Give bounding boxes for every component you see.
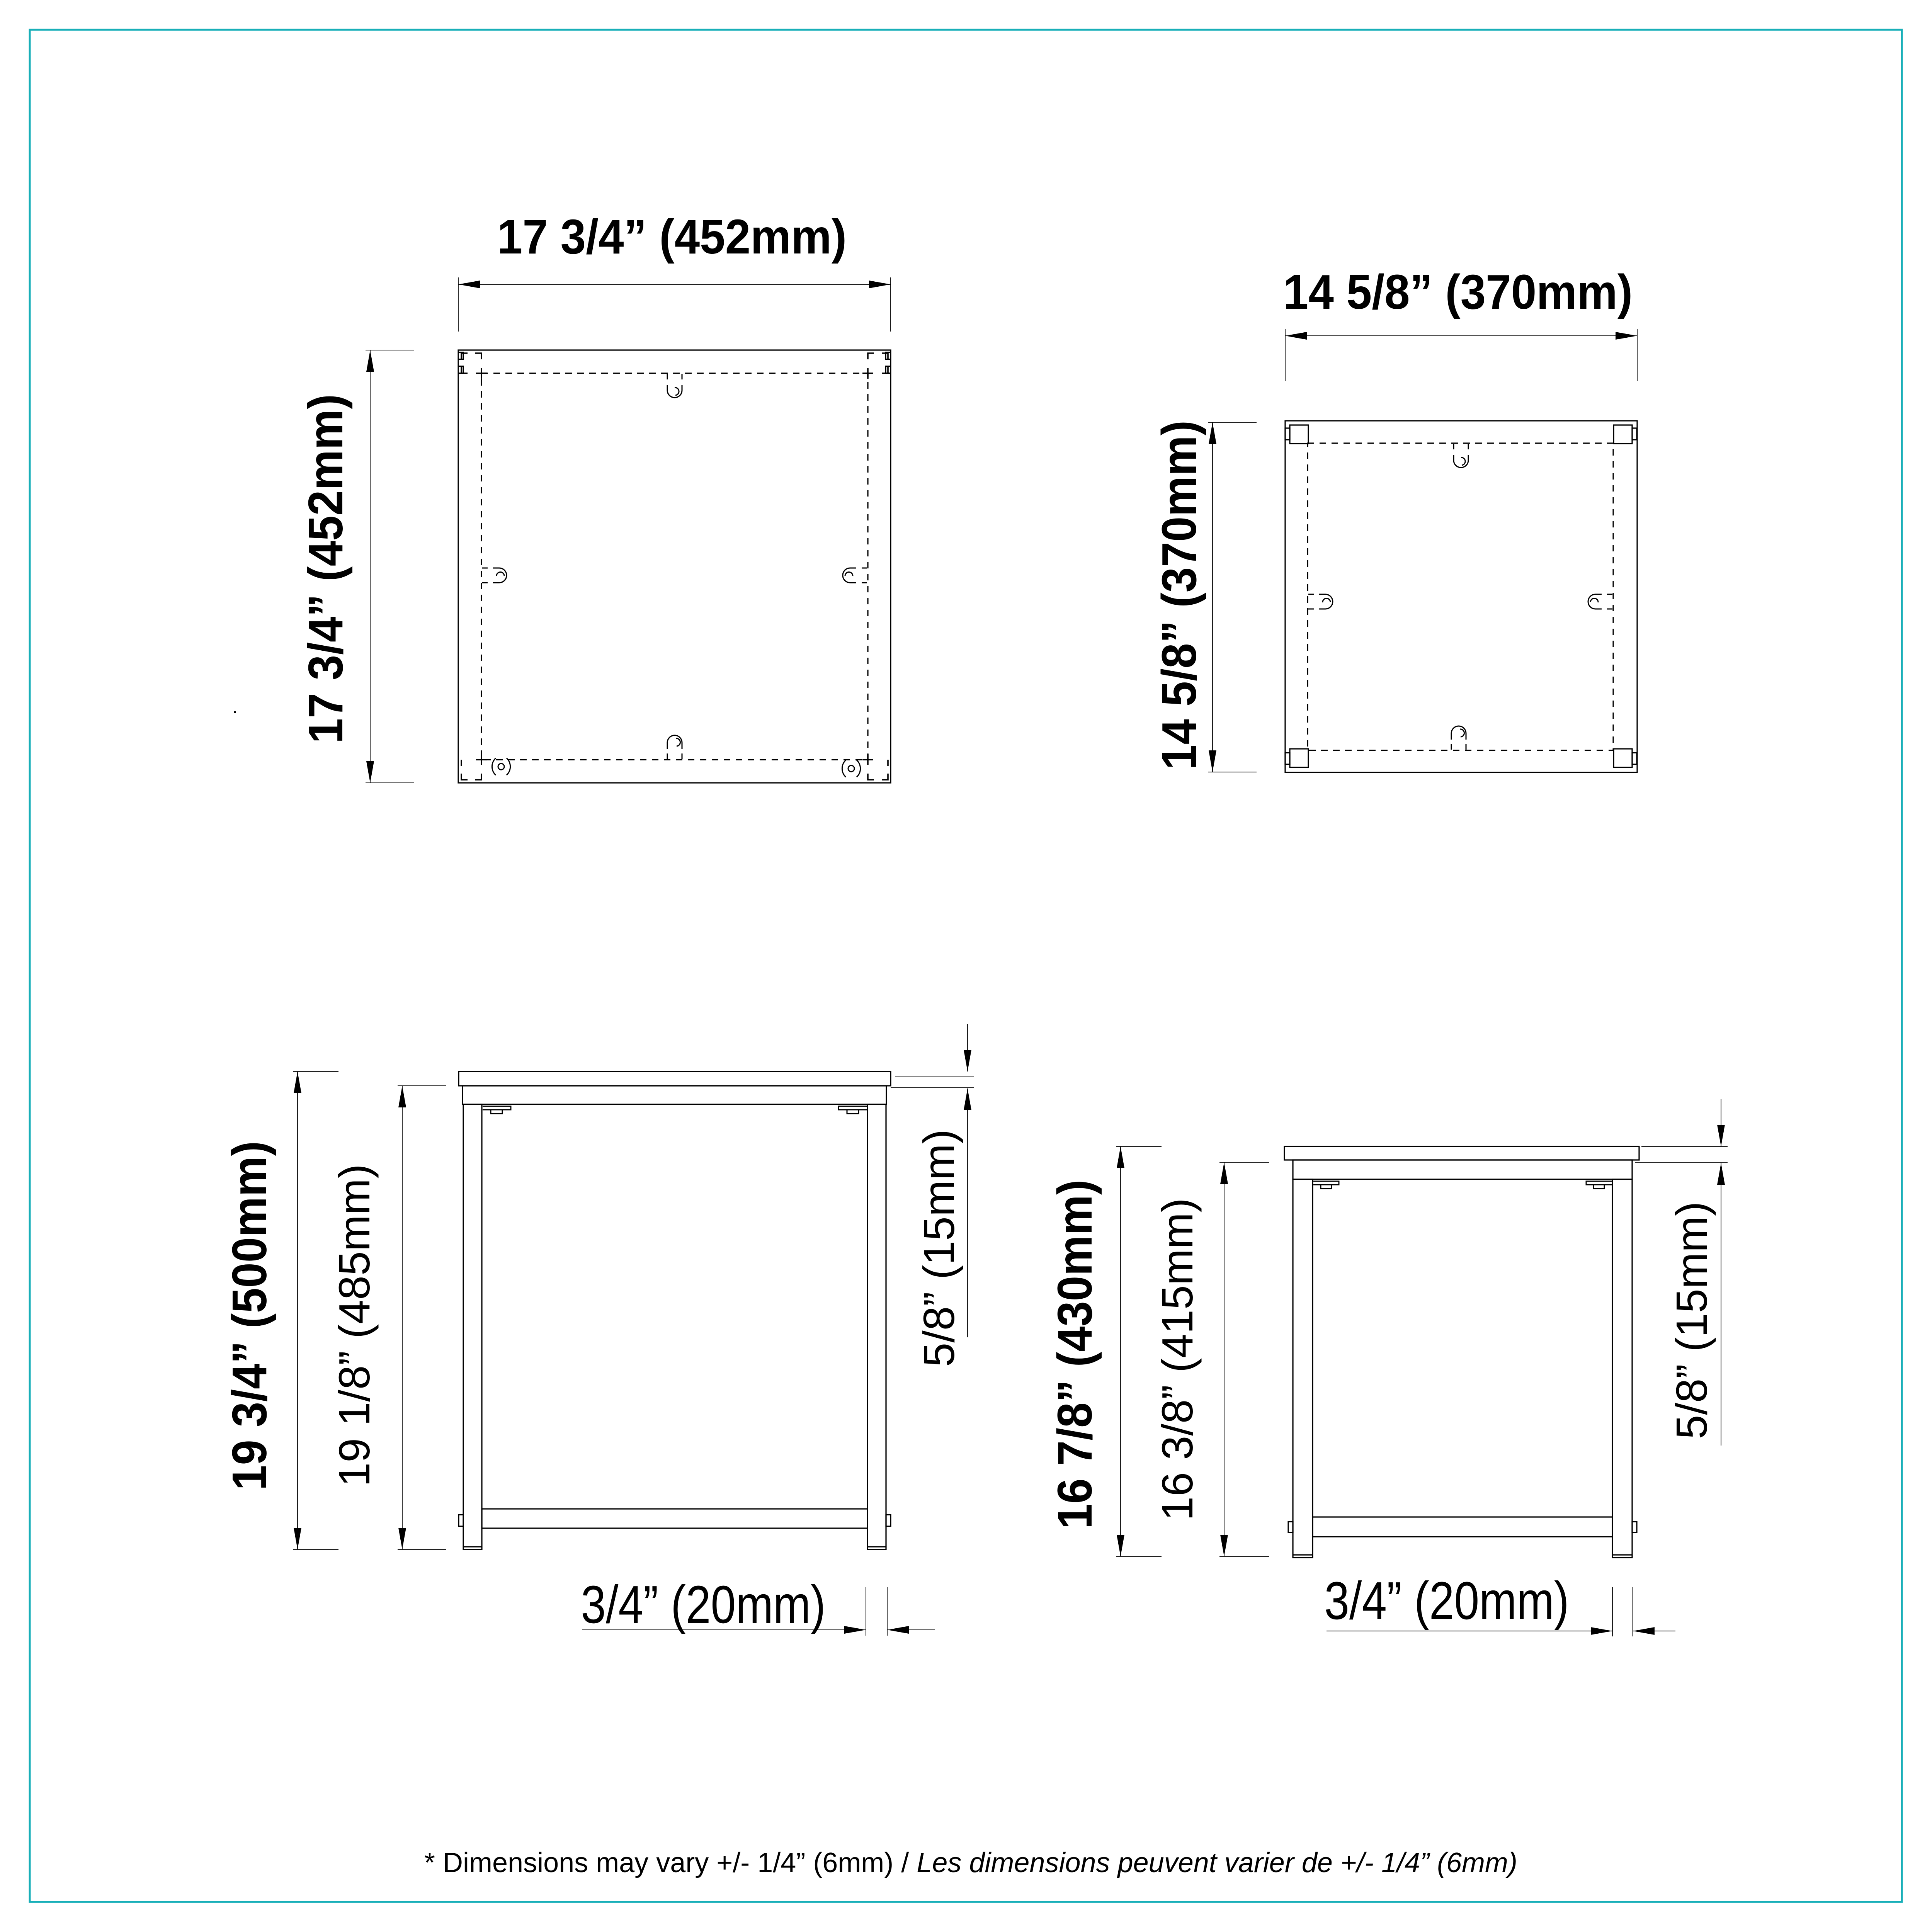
svg-text:19 3/4” (500mm): 19 3/4” (500mm)	[222, 1141, 276, 1491]
svg-text:17 3/4” (452mm): 17 3/4” (452mm)	[298, 394, 352, 744]
svg-text:17 3/4” (452mm): 17 3/4” (452mm)	[497, 209, 847, 264]
svg-text:3/4” (20mm): 3/4” (20mm)	[581, 1575, 825, 1635]
svg-text:16 7/8” (430mm): 16 7/8” (430mm)	[1048, 1180, 1102, 1529]
svg-text:16 3/8” (415mm): 16 3/8” (415mm)	[1153, 1198, 1202, 1520]
svg-text:14 5/8” (370mm): 14 5/8” (370mm)	[1283, 265, 1633, 319]
svg-text:* Dimensions may vary +/- 1/4”: * Dimensions may vary +/- 1/4” (6mm) / L…	[424, 1847, 1517, 1878]
svg-text:3/4” (20mm): 3/4” (20mm)	[1324, 1571, 1569, 1631]
svg-text:5/8” (15mm): 5/8” (15mm)	[915, 1129, 963, 1367]
svg-text:14 5/8” (370mm): 14 5/8” (370mm)	[1152, 420, 1206, 770]
svg-text:5/8” (15mm): 5/8” (15mm)	[1667, 1201, 1716, 1439]
svg-text:19 1/8” (485mm): 19 1/8” (485mm)	[330, 1164, 379, 1486]
